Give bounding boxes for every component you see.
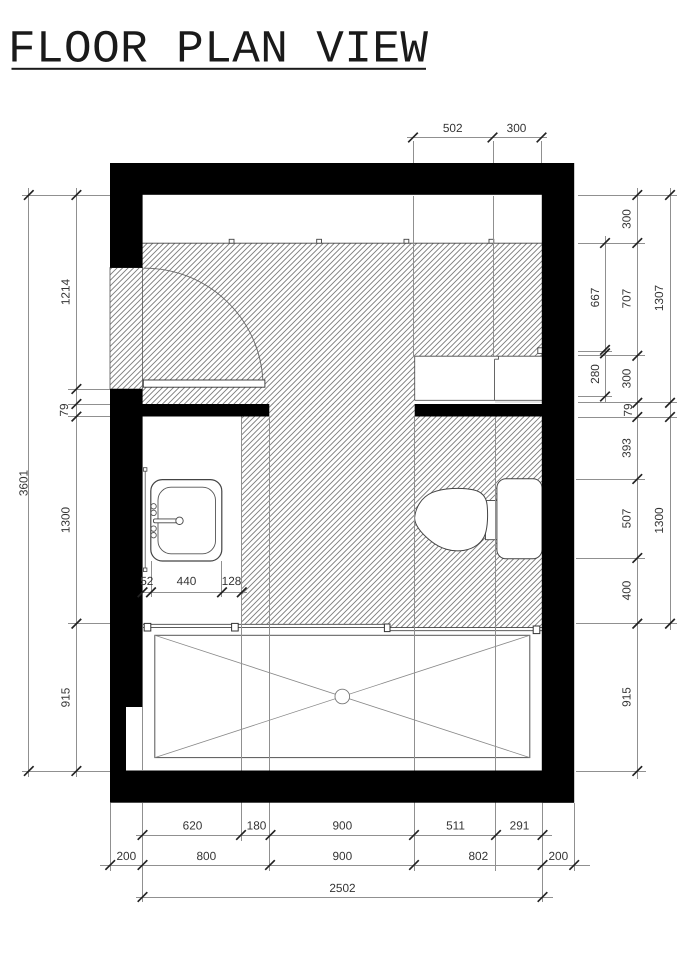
svg-text:1307: 1307 [652, 285, 666, 311]
svg-text:200: 200 [548, 849, 568, 863]
svg-text:128: 128 [222, 574, 242, 588]
svg-text:3601: 3601 [17, 470, 31, 496]
svg-text:800: 800 [196, 849, 216, 863]
svg-text:502: 502 [443, 121, 463, 135]
svg-text:2502: 2502 [329, 881, 355, 895]
svg-text:79: 79 [621, 403, 635, 416]
svg-text:620: 620 [183, 819, 203, 833]
svg-text:507: 507 [620, 509, 634, 529]
svg-text:FLOOR PLAN VIEW: FLOOR PLAN VIEW [8, 24, 428, 76]
svg-text:440: 440 [177, 574, 197, 588]
svg-text:900: 900 [332, 849, 352, 863]
svg-text:280: 280 [588, 364, 602, 384]
svg-text:1214: 1214 [59, 278, 73, 305]
svg-text:802: 802 [468, 849, 488, 863]
svg-text:291: 291 [510, 819, 530, 833]
svg-text:200: 200 [116, 849, 136, 863]
svg-text:300: 300 [620, 209, 634, 229]
svg-text:52: 52 [140, 574, 153, 588]
svg-text:300: 300 [620, 368, 634, 388]
svg-text:79: 79 [57, 403, 71, 416]
svg-text:1300: 1300 [652, 507, 666, 534]
svg-text:180: 180 [247, 819, 267, 833]
svg-text:915: 915 [59, 687, 73, 707]
svg-text:915: 915 [620, 687, 634, 707]
svg-text:393: 393 [620, 438, 634, 458]
svg-text:667: 667 [588, 288, 602, 308]
svg-text:511: 511 [446, 819, 465, 833]
svg-text:300: 300 [507, 121, 527, 135]
svg-text:707: 707 [620, 289, 634, 309]
svg-text:400: 400 [620, 580, 634, 600]
svg-text:1300: 1300 [59, 506, 73, 533]
svg-text:900: 900 [332, 819, 352, 833]
